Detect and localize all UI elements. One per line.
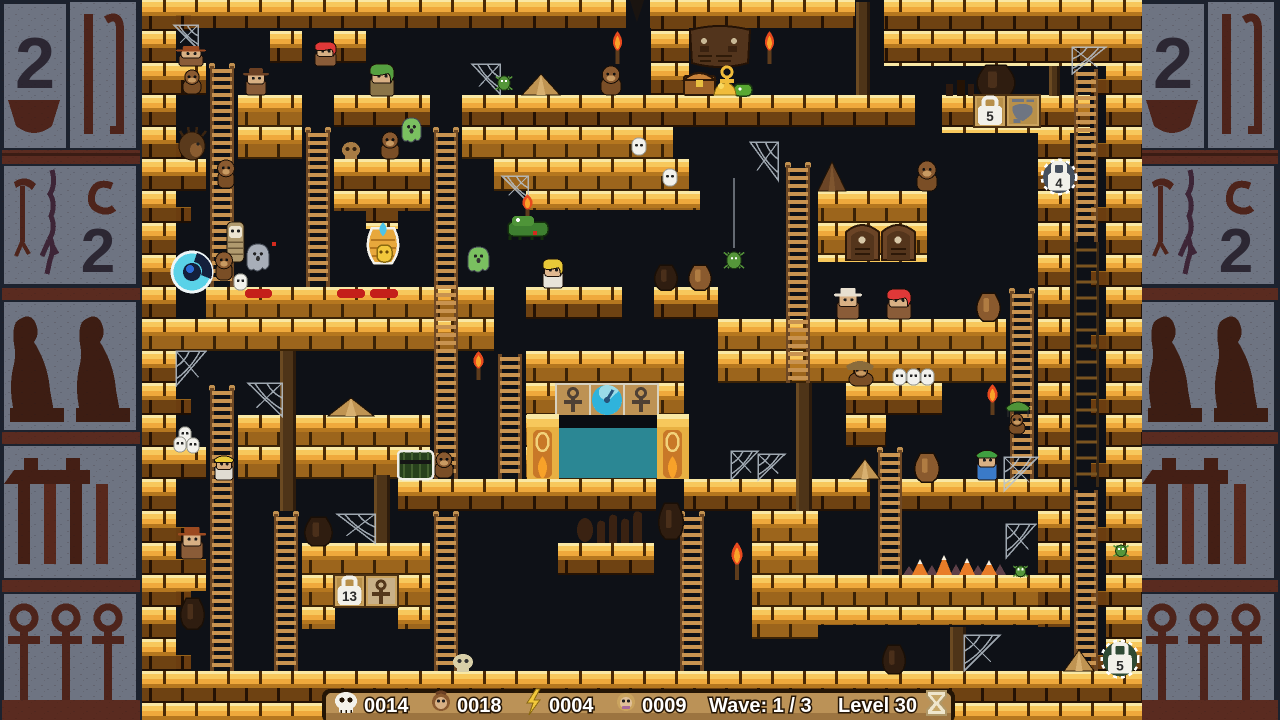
svg-text:13: 13 (342, 589, 357, 604)
svg-text:0014: 0014 (364, 695, 409, 717)
svg-text:Level 30: Level 30 (838, 695, 917, 717)
svg-text:5: 5 (1116, 658, 1124, 673)
svg-text:0009: 0009 (642, 695, 687, 717)
svg-text:0004: 0004 (549, 695, 594, 717)
svg-text:Wave: 1 / 3: Wave: 1 / 3 (709, 695, 812, 717)
svg-text:4: 4 (1055, 176, 1063, 191)
svg-text:5: 5 (986, 109, 994, 124)
svg-text:0018: 0018 (457, 695, 502, 717)
